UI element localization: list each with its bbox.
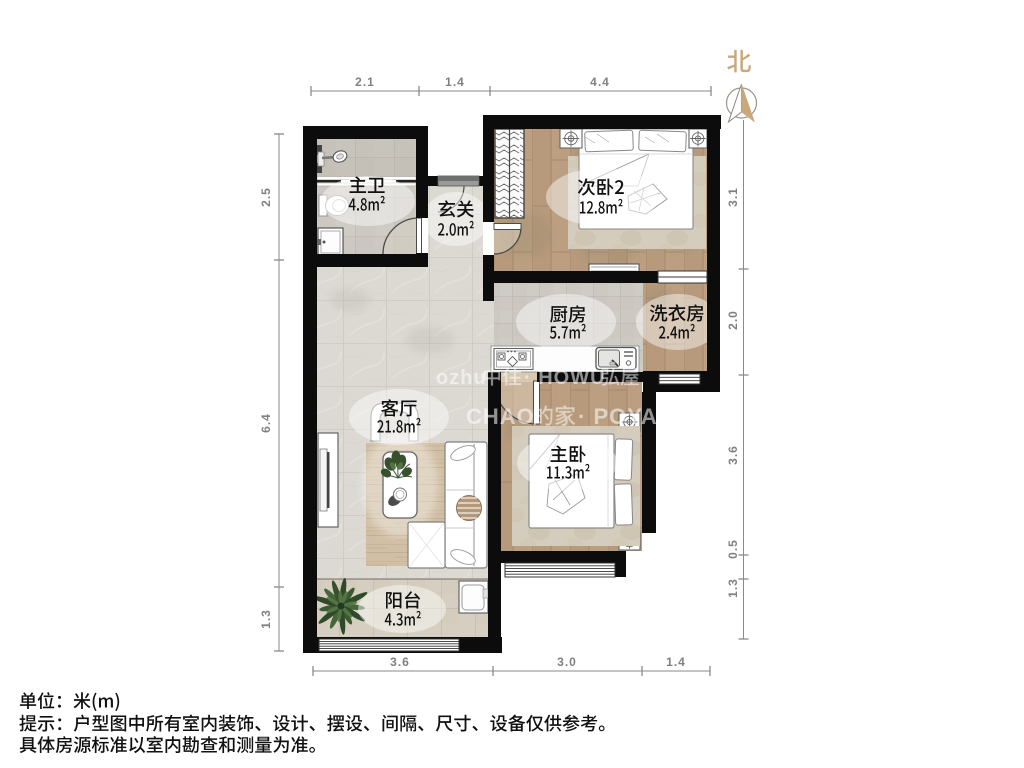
svg-text:· HOWU: · HOWU [524,367,606,389]
svg-text:1.4: 1.4 [445,75,465,89]
svg-text:· POYAN: · POYAN [578,404,675,429]
svg-text:1.3: 1.3 [726,578,740,598]
svg-text:2.1: 2.1 [355,75,375,89]
svg-text:4.4: 4.4 [590,75,610,89]
svg-text:2.5: 2.5 [259,187,273,207]
svg-text:3.6: 3.6 [726,445,740,465]
svg-text:3.0: 3.0 [557,655,577,669]
svg-text:0.5: 0.5 [726,539,740,559]
svg-text:1.3: 1.3 [259,609,273,629]
svg-text:2.0: 2.0 [726,310,740,330]
svg-text:1.4: 1.4 [666,655,686,669]
svg-text:3.1: 3.1 [726,187,740,207]
svg-text:CHAO: CHAO [466,404,535,429]
svg-text:6.4: 6.4 [259,413,273,433]
svg-text:ozhu: ozhu [436,367,487,389]
svg-text:3.6: 3.6 [390,655,410,669]
